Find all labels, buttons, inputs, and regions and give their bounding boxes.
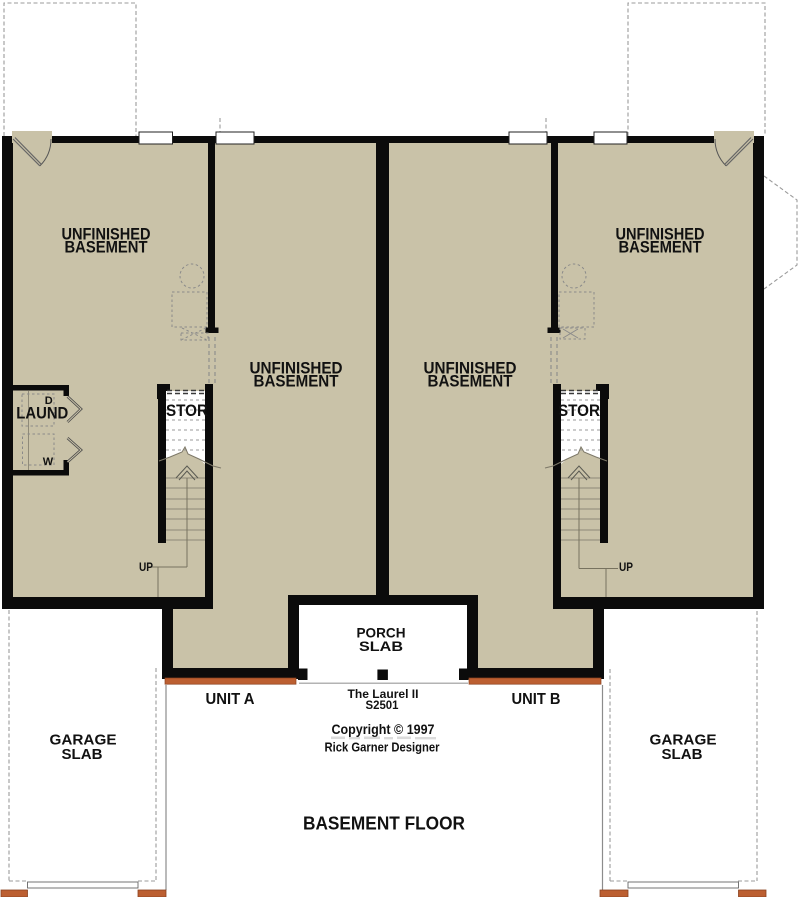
svg-text:SLAB: SLAB — [62, 746, 103, 763]
svg-text:Rick Garner Designer: Rick Garner Designer — [325, 741, 440, 755]
svg-text:STOR: STOR — [558, 401, 600, 420]
svg-text:UP: UP — [619, 562, 633, 574]
svg-text:BASEMENT FLOOR: BASEMENT FLOOR — [303, 813, 465, 834]
svg-text:STOR: STOR — [166, 401, 208, 420]
svg-text:UNIT A: UNIT A — [206, 691, 255, 708]
svg-text:SLAB: SLAB — [359, 638, 403, 654]
svg-text:W: W — [43, 456, 54, 468]
svg-text:BASEMENT: BASEMENT — [254, 373, 339, 391]
svg-text:BASEMENT: BASEMENT — [619, 239, 702, 257]
svg-text:SLAB: SLAB — [662, 746, 703, 763]
svg-text:S2501: S2501 — [366, 698, 399, 712]
svg-text:UP: UP — [139, 562, 153, 574]
svg-text:BASEMENT: BASEMENT — [65, 239, 148, 257]
svg-text:Copyright © 1997: Copyright © 1997 — [332, 721, 435, 737]
svg-text:UNIT B: UNIT B — [512, 691, 561, 708]
svg-text:LAUND: LAUND — [16, 405, 68, 423]
svg-text:BASEMENT: BASEMENT — [428, 373, 513, 391]
